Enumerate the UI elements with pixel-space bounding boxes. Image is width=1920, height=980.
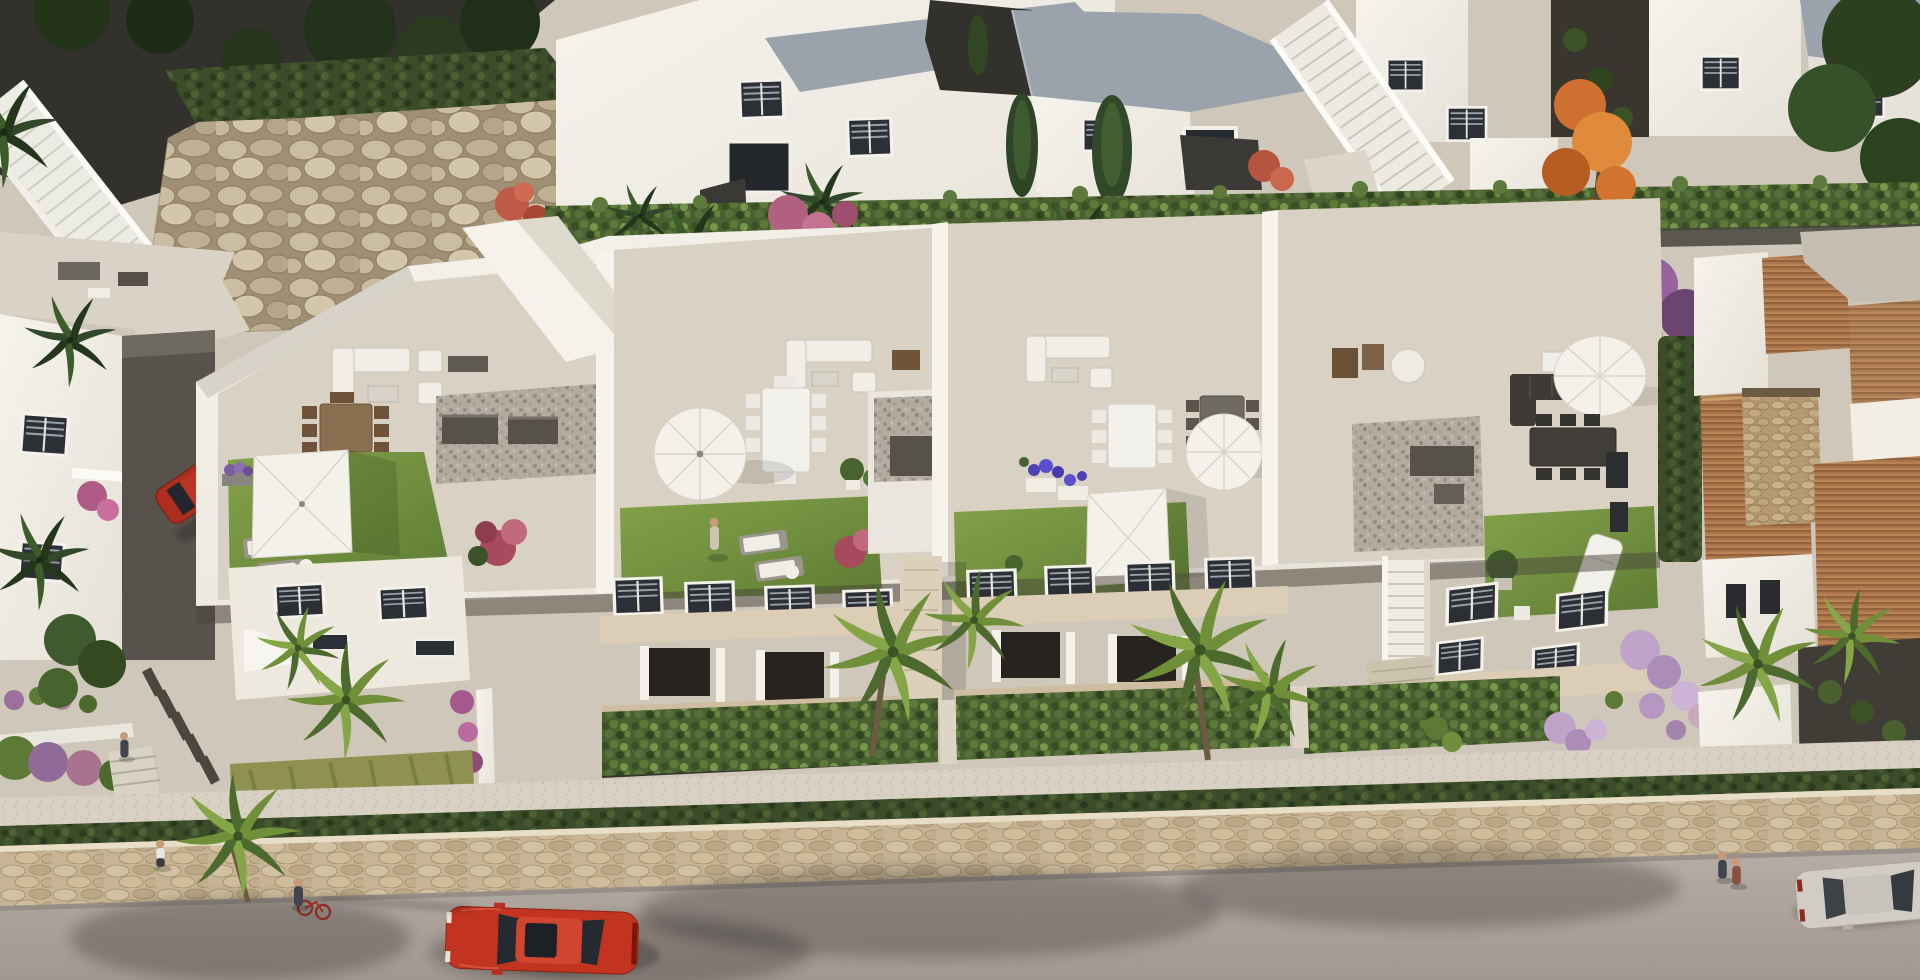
render-viewport	[0, 0, 1920, 980]
shuttered-window	[19, 412, 70, 457]
terrace-opening	[648, 648, 710, 696]
ac-unit	[508, 418, 558, 444]
villa-lower-wall	[1702, 554, 1816, 658]
pebble-patio	[1352, 416, 1484, 552]
shuttered-window	[1446, 106, 1487, 142]
terrace-furniture	[58, 262, 100, 280]
ac-unit	[442, 416, 498, 444]
shuttered-window	[846, 116, 893, 158]
stone-tower	[1742, 390, 1822, 526]
roof-terrace-3	[948, 214, 1288, 602]
square-parasol	[252, 450, 400, 558]
window	[1726, 584, 1746, 618]
window	[1760, 580, 1780, 614]
shuttered-window	[738, 78, 785, 120]
clay-tile-roof	[1848, 300, 1920, 408]
shuttered-window	[1386, 58, 1425, 92]
dining-set-white	[1092, 404, 1172, 468]
party-wall	[932, 222, 948, 578]
party-wall	[1262, 210, 1278, 566]
garden-path	[939, 700, 957, 765]
terrace-opening	[762, 652, 824, 700]
small-chair	[1514, 606, 1530, 620]
terrace-opening	[1000, 632, 1060, 678]
window	[1606, 452, 1628, 488]
clay-tile-roof	[1814, 456, 1920, 648]
shuttered-window	[1700, 55, 1741, 91]
window	[1610, 502, 1628, 532]
storage-box	[1332, 348, 1358, 378]
aerial-render	[0, 0, 1920, 980]
red-sedan	[445, 901, 661, 980]
villa-gable	[1694, 252, 1768, 396]
ac-unit	[1410, 446, 1474, 476]
round-lounger	[1391, 349, 1425, 383]
side-table	[785, 565, 799, 579]
